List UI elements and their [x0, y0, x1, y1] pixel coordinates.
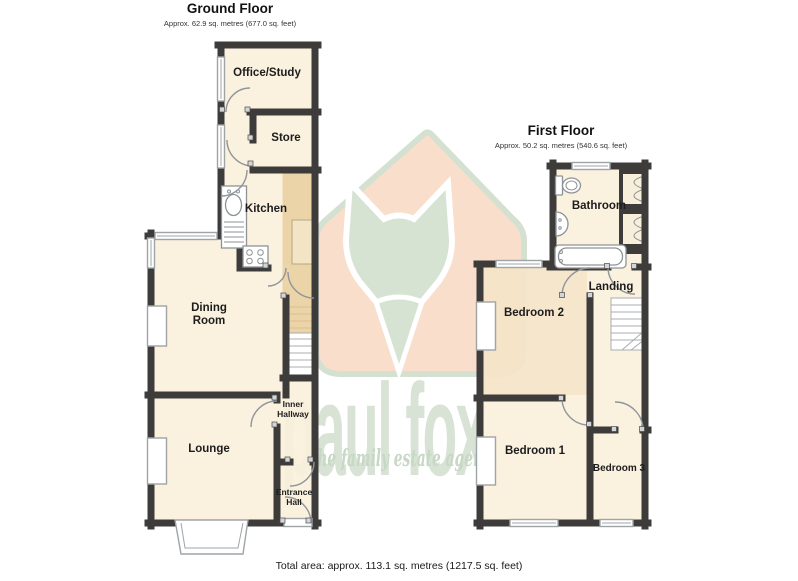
window	[496, 261, 542, 268]
room-label-inner-hallway-1: Inner	[283, 399, 304, 409]
room-label-store: Store	[271, 132, 300, 144]
window	[218, 125, 225, 168]
toilet-icon	[556, 176, 581, 195]
room-label-office-study: Office/Study	[233, 67, 301, 79]
chimney-breast	[477, 302, 496, 350]
total-area-text: Total area: approx. 113.1 sq. metres (12…	[0, 560, 798, 572]
room-label-dining-1: Dining	[191, 302, 227, 314]
window	[600, 520, 633, 527]
window	[572, 163, 610, 170]
room-label-landing: Landing	[589, 281, 634, 293]
room-label-entrance-2: Hall	[286, 497, 302, 507]
chimney-breast	[148, 438, 167, 484]
window	[148, 238, 155, 268]
room-label-lounge: Lounge	[188, 443, 230, 455]
ground-floor-area: Approx. 62.9 sq. metres (677.0 sq. feet)	[130, 19, 330, 28]
cupboard	[292, 220, 313, 264]
window	[510, 520, 558, 527]
bedroom2-tint	[483, 267, 587, 395]
bathtub-icon	[555, 245, 626, 268]
ground-floor-plan: Office/Study Store Kitchen Dining Room I…	[140, 38, 340, 560]
first-floor-plan: Bathroom Landing Bedroom 2 Bedroom 1 Bed…	[460, 150, 660, 545]
first-floor-title-block: First Floor Approx. 50.2 sq. metres (540…	[461, 124, 661, 150]
bay-window	[175, 520, 248, 554]
room-label-entrance-1: Entrance	[276, 487, 313, 497]
ground-floor-title-block: Ground Floor Approx. 62.9 sq. metres (67…	[130, 2, 330, 28]
room-label-kitchen: Kitchen	[245, 203, 287, 215]
floorplan-page: paul fox the family estate agents Ground…	[0, 0, 798, 581]
room-label-bedroom2: Bedroom 2	[504, 307, 564, 319]
room-label-dining-2: Room	[193, 315, 226, 327]
room-label-bedroom1: Bedroom 1	[505, 445, 566, 457]
first-floor-title: First Floor	[461, 124, 661, 139]
chimney-breast	[477, 437, 496, 485]
window	[155, 233, 217, 240]
stairs-icon	[611, 298, 644, 350]
room-label-bathroom: Bathroom	[572, 200, 626, 212]
chimney-breast	[148, 306, 167, 346]
ground-floor-title: Ground Floor	[130, 2, 330, 17]
room-label-inner-hallway-2: Hallway	[277, 409, 309, 419]
first-floor-area: Approx. 50.2 sq. metres (540.6 sq. feet)	[461, 141, 661, 150]
window	[218, 57, 225, 101]
room-label-bedroom3: Bedroom 3	[593, 463, 646, 474]
